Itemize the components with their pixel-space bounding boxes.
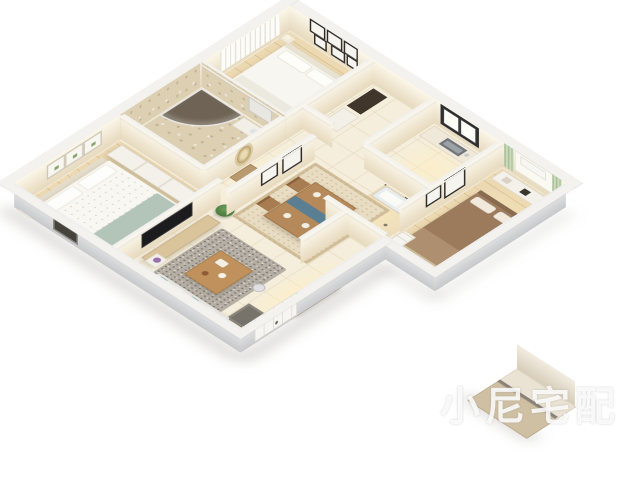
tableware	[200, 270, 210, 276]
tea-tray	[214, 258, 229, 268]
floorplan-render-canvas: 小尼宅配	[0, 0, 640, 480]
place-setting	[311, 191, 322, 198]
door-knob	[275, 320, 278, 325]
shelf-box	[501, 176, 513, 184]
place-setting	[282, 212, 293, 219]
hexagon-cube-logo-icon	[386, 379, 430, 427]
botanical-print	[73, 153, 77, 159]
botanical-print	[91, 141, 95, 147]
shelf-box	[519, 188, 531, 196]
green-curtain	[504, 143, 513, 172]
botanical-print	[55, 165, 59, 171]
place-setting	[300, 222, 311, 229]
faucet	[463, 153, 470, 158]
tableware	[216, 272, 227, 279]
